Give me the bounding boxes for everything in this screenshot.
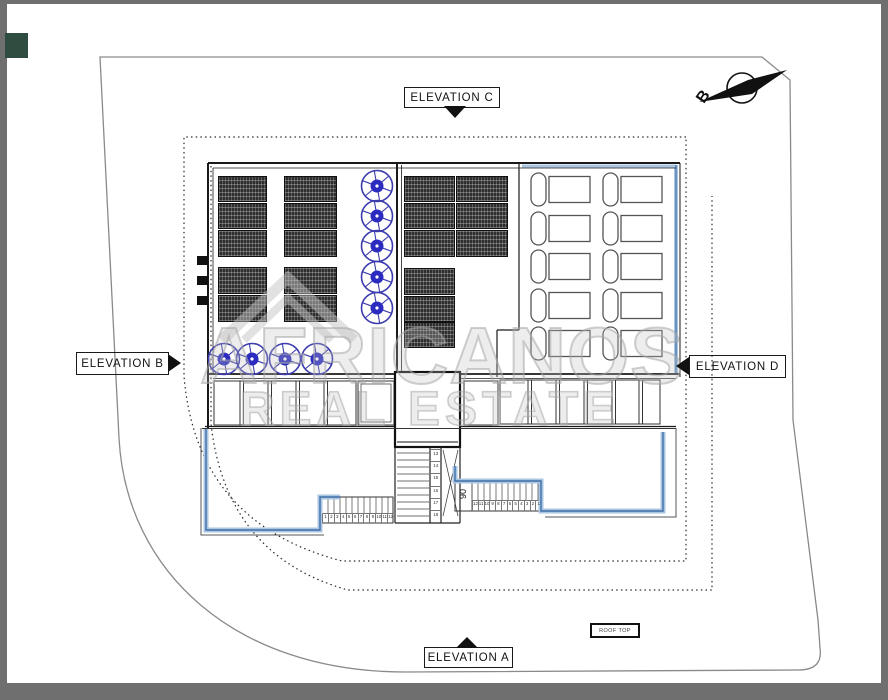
- solar-panel: [456, 176, 508, 202]
- solar-panel: [284, 176, 337, 202]
- solar-panel: [404, 268, 455, 295]
- frame-top: [0, 0, 888, 4]
- solar-panel: [456, 203, 508, 229]
- elevation-d-arrow-icon: [676, 357, 689, 375]
- elevation-b-label: ELEVATION B: [76, 352, 169, 375]
- roof-plan-page: B AFRICANOS REAL ESTATE 123456789101112 …: [0, 0, 888, 700]
- elevation-d-label: ELEVATION D: [689, 355, 786, 378]
- frame-bottom: [0, 683, 888, 700]
- solar-panel: [284, 267, 337, 294]
- stair-dimension-90: 90: [458, 483, 468, 505]
- elevation-a-label: ELEVATION A: [424, 647, 513, 668]
- elevation-b-arrow-icon: [168, 354, 181, 372]
- north-arrow-letter: B: [693, 87, 714, 106]
- solar-panel: [404, 176, 455, 202]
- solar-panel: [218, 267, 267, 294]
- solar-panel: [218, 295, 267, 322]
- solar-panel: [218, 230, 267, 257]
- north-arrow: B: [693, 70, 787, 106]
- stair-numbers-shaft: 131415161718: [431, 449, 442, 522]
- solar-panel: [284, 230, 337, 257]
- solar-panel: [218, 176, 267, 202]
- roof-cell-strip-right: [500, 380, 660, 424]
- roof-top-label: ROOF TOP: [590, 623, 640, 638]
- solar-panel: [404, 296, 455, 322]
- frame-right: [881, 0, 888, 700]
- solar-panel: [284, 295, 337, 322]
- solar-panel: [404, 203, 455, 229]
- solar-panel: [404, 322, 455, 348]
- stair-numbers-bottom: 123456789101112: [322, 514, 393, 524]
- solar-panel: [404, 230, 455, 257]
- water-tanks-and-roof-units: [531, 173, 662, 360]
- frame-left: [0, 0, 7, 700]
- solar-panel: [456, 230, 508, 257]
- stair-numbers-right: 121110987654321: [472, 501, 541, 511]
- elevation-a-arrow-icon: [456, 637, 478, 648]
- corner-swatch: [5, 33, 28, 58]
- solar-panel: [284, 203, 337, 229]
- elevation-c-arrow-icon: [444, 106, 466, 118]
- solar-panel: [218, 203, 267, 229]
- elevation-c-label: ELEVATION C: [404, 87, 500, 108]
- stair-shaft: [395, 372, 460, 523]
